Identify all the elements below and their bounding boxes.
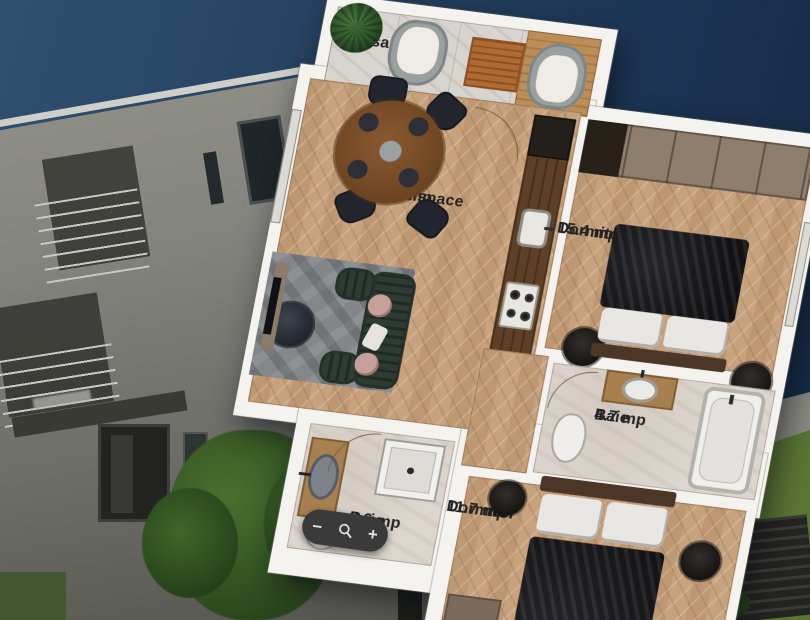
floorplan-viewer: Terasa 6 mp Open space 28.3 mp [0, 0, 810, 620]
fridge [527, 114, 577, 161]
burner [506, 308, 517, 318]
magnifier-icon[interactable] [337, 522, 354, 539]
pillow [597, 307, 665, 349]
zoom-out-button[interactable]: − [311, 517, 323, 535]
room-dormitor-1: Dormitor 15.4 mp [544, 119, 810, 377]
bedside-rug [677, 540, 724, 583]
bathtub-inner [697, 396, 757, 485]
balcony-railing [34, 188, 149, 283]
shower-drain [406, 467, 414, 474]
pillow [601, 501, 670, 548]
plate [346, 159, 369, 180]
faucet [640, 370, 644, 378]
plate [397, 167, 420, 188]
room-label: Baie 4.7 mp [596, 407, 715, 422]
cushion [532, 53, 581, 104]
room-area: 15.4 mp [556, 220, 620, 245]
bed [590, 223, 750, 372]
bathtub [686, 386, 767, 496]
bowl [378, 139, 404, 163]
toilet [547, 411, 590, 464]
terrace-table [463, 37, 526, 93]
wardrobe-dark-section [578, 119, 628, 177]
duvet [487, 536, 666, 620]
shower [374, 438, 446, 502]
faucet [299, 472, 311, 476]
zoom-in-button[interactable]: + [367, 525, 379, 543]
room-area: 4.7 mp [593, 407, 648, 431]
plate [357, 112, 380, 133]
pillow [535, 493, 604, 540]
door-glass [111, 435, 133, 513]
door-arc [547, 367, 599, 414]
door-arc [328, 428, 382, 477]
cushion [394, 25, 443, 76]
grass [0, 572, 66, 620]
burner [519, 311, 531, 322]
pillow [662, 315, 730, 357]
sink [620, 375, 660, 404]
plate [407, 116, 430, 137]
burner [509, 289, 521, 300]
burner [524, 293, 535, 303]
